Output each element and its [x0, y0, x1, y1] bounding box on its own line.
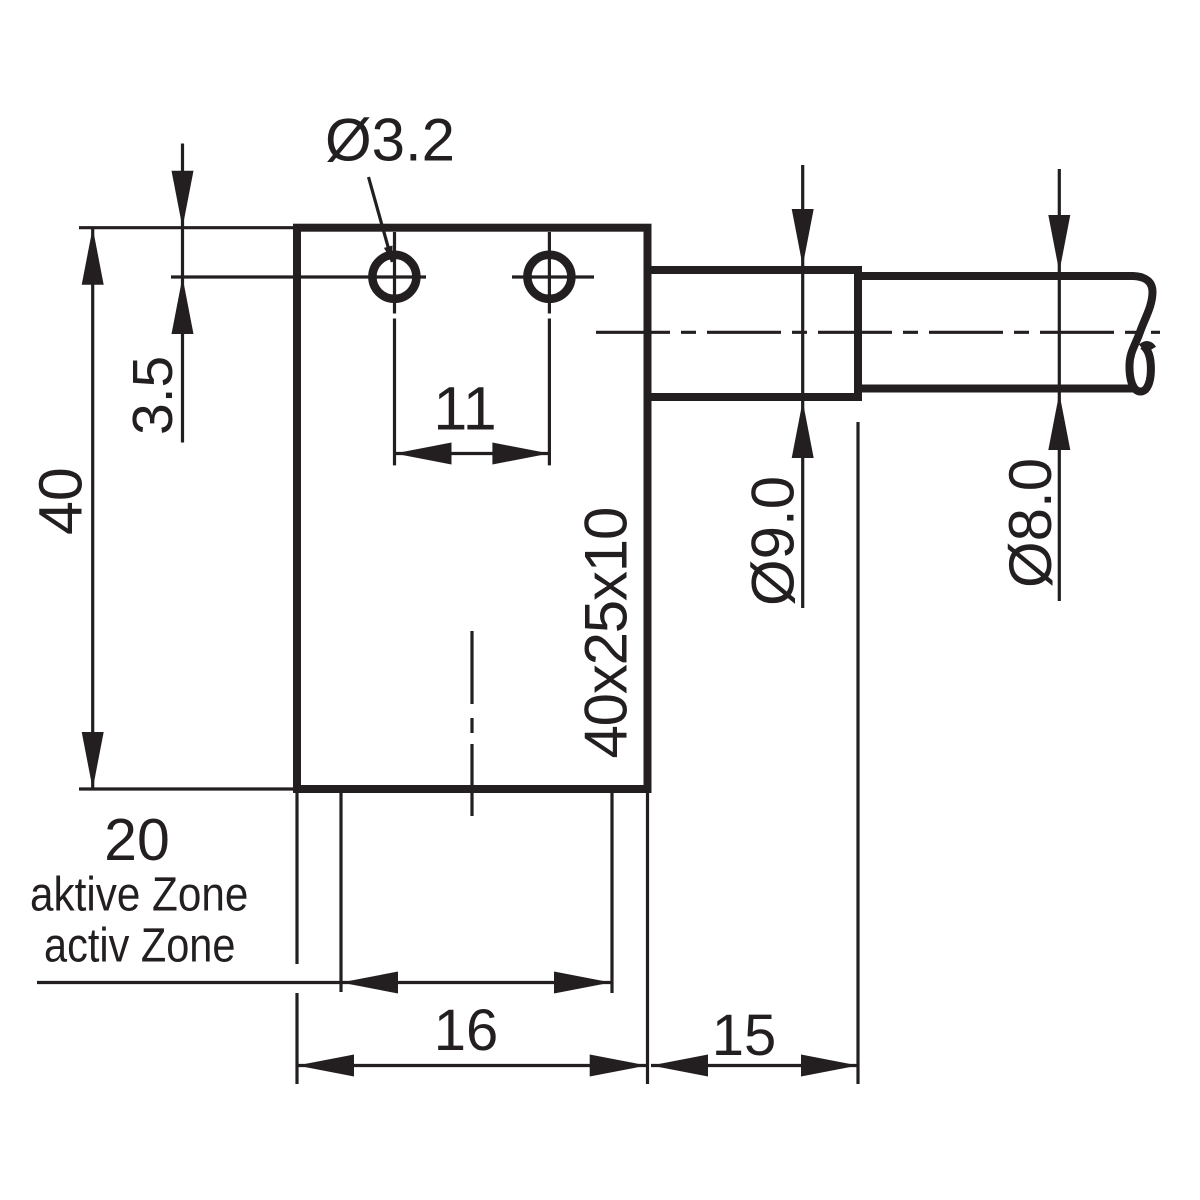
svg-text:40x25x10: 40x25x10: [573, 508, 640, 759]
svg-text:activ Zone: activ Zone: [44, 918, 235, 973]
svg-text:Ø8.0: Ø8.0: [997, 458, 1064, 588]
svg-text:20: 20: [104, 807, 170, 873]
svg-text:Ø3.2: Ø3.2: [325, 107, 455, 174]
svg-text:aktive Zone: aktive Zone: [30, 867, 248, 921]
svg-text:40: 40: [27, 467, 95, 535]
svg-text:16: 16: [434, 998, 499, 1063]
svg-text:Ø9.0: Ø9.0: [740, 476, 807, 606]
svg-text:3.5: 3.5: [121, 356, 185, 435]
svg-text:11: 11: [433, 375, 496, 443]
svg-text:15: 15: [712, 1003, 777, 1068]
